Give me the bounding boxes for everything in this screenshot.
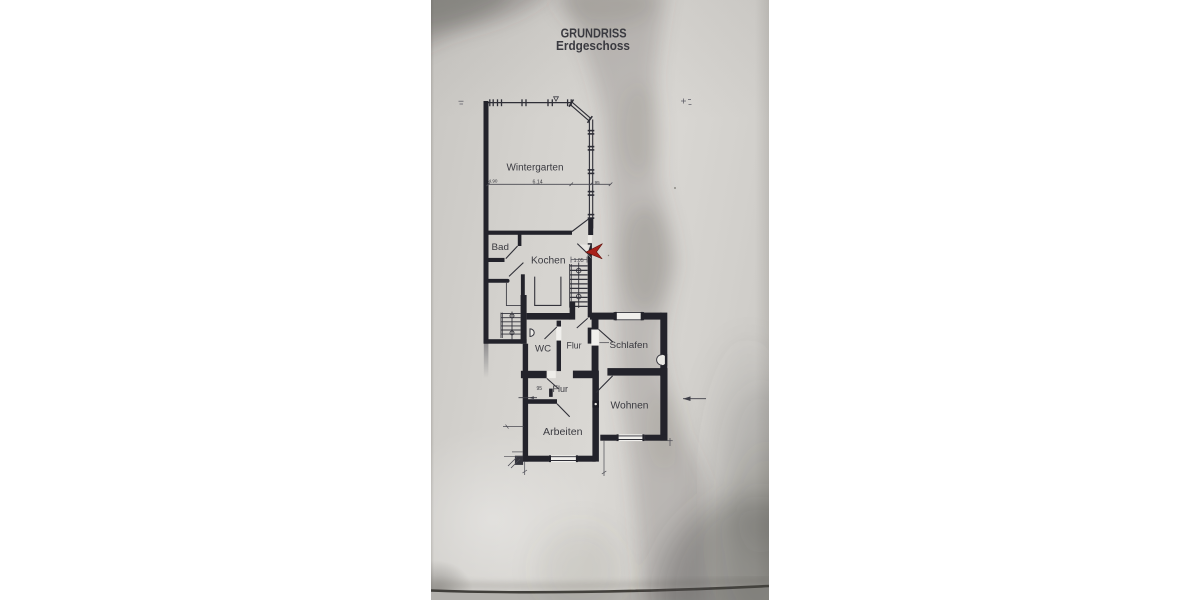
svg-text:WC: WC (535, 344, 551, 355)
svg-text:Schlafen: Schlafen (610, 340, 649, 351)
svg-text:Flur: Flur (553, 384, 569, 395)
svg-text:Kochen: Kochen (531, 255, 566, 266)
svg-text:Arbeiten: Arbeiten (543, 427, 583, 438)
svg-text:1.05: 1.05 (574, 258, 584, 264)
svg-text:Wohnen: Wohnen (611, 400, 649, 411)
svg-text:Wintergarten: Wintergarten (507, 163, 564, 174)
svg-text:Flur: Flur (567, 341, 582, 352)
svg-text:6.14: 6.14 (533, 180, 543, 186)
svg-text:Bad: Bad (492, 242, 510, 253)
svg-text:95: 95 (537, 386, 543, 392)
svg-text:Erdgeschoss: Erdgeschoss (556, 38, 630, 53)
svg-text:4.90: 4.90 (489, 178, 498, 183)
svg-text:95: 95 (595, 180, 601, 185)
